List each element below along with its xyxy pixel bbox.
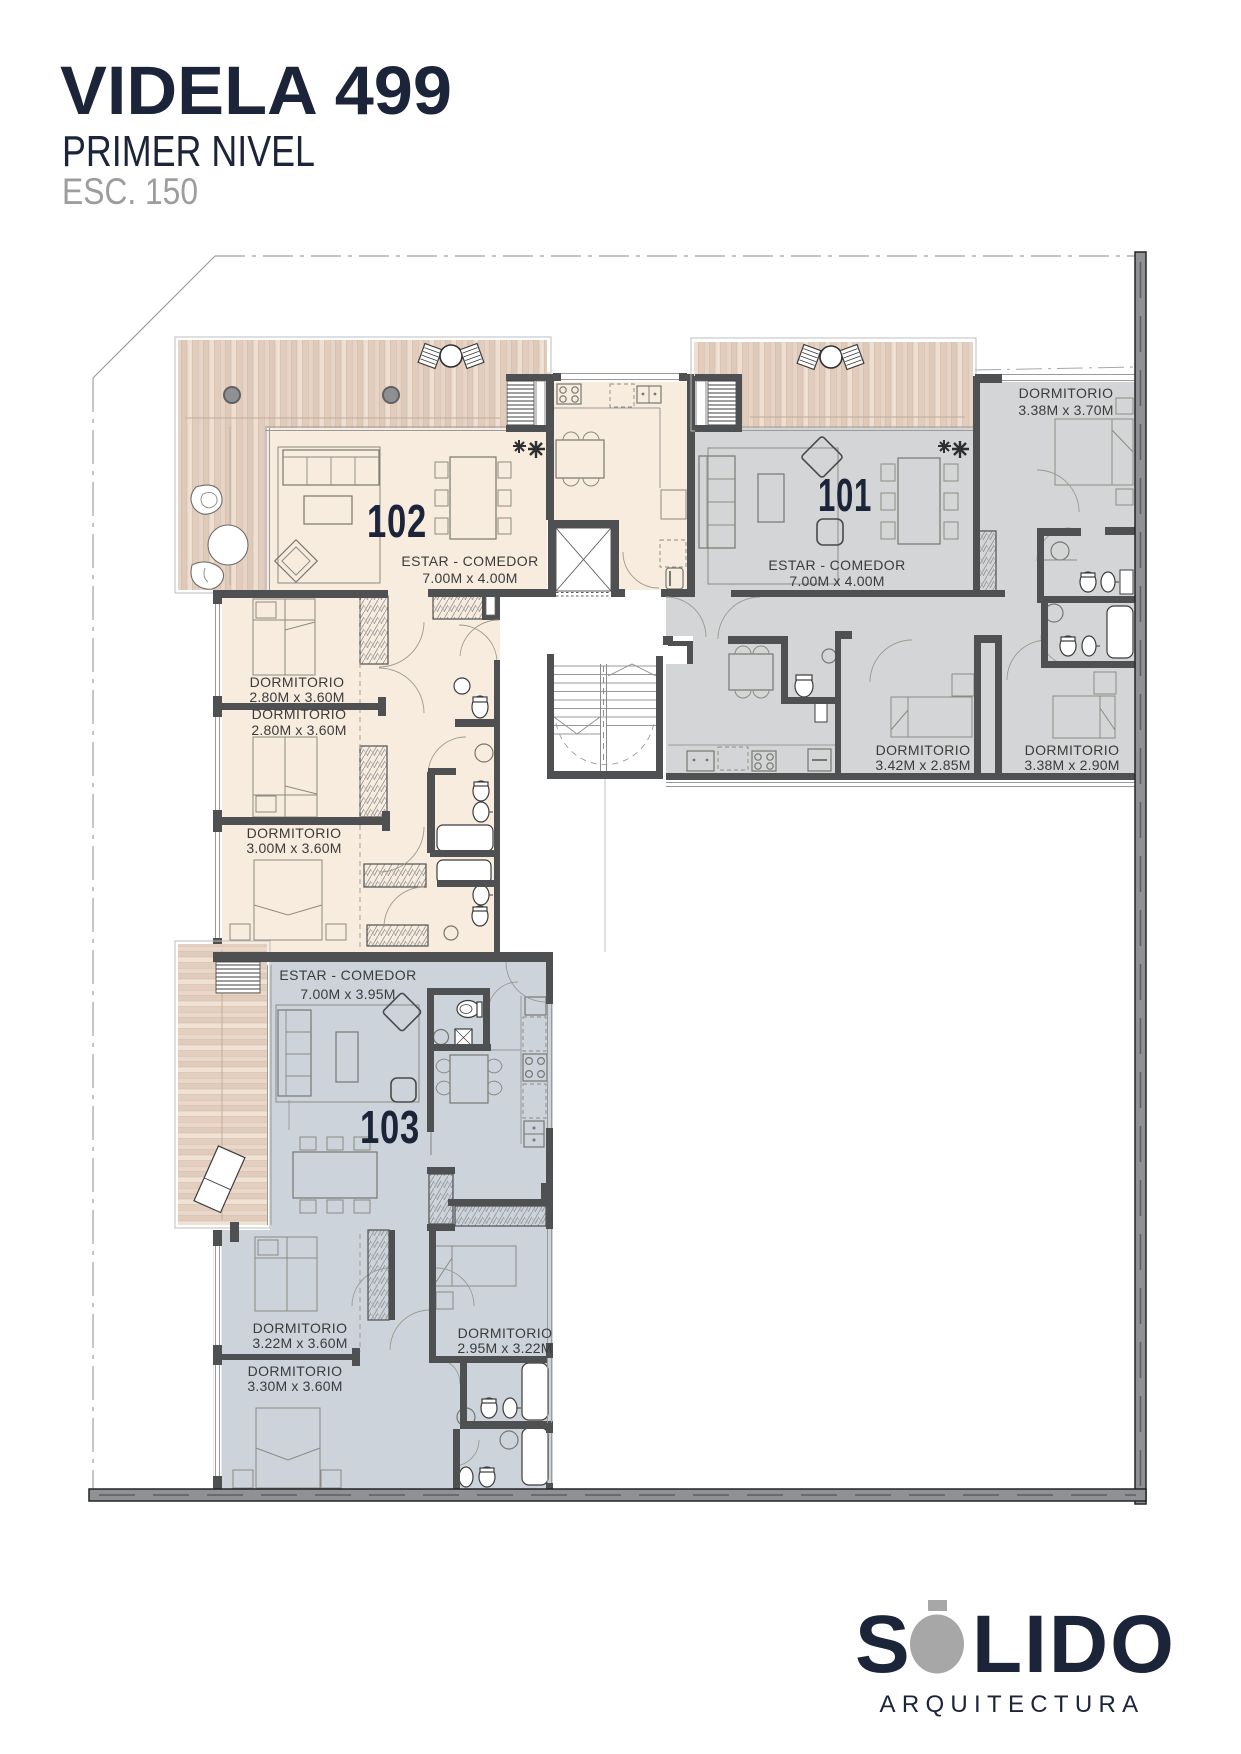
svg-text:7.00M x 4.00M: 7.00M x 4.00M <box>422 570 517 586</box>
svg-text:102: 102 <box>367 495 427 547</box>
svg-text:3.38M x 2.90M: 3.38M x 2.90M <box>1024 757 1119 773</box>
svg-text:3.30M x 3.60M: 3.30M x 3.60M <box>247 1378 342 1394</box>
svg-text:ESC. 150: ESC. 150 <box>62 171 198 212</box>
svg-text:7.00M x 3.95M: 7.00M x 3.95M <box>300 986 395 1002</box>
svg-text:103: 103 <box>360 1101 420 1153</box>
svg-text:ESTAR - COMEDOR: ESTAR - COMEDOR <box>768 557 905 573</box>
svg-text:DORMITORIO: DORMITORIO <box>458 1325 553 1341</box>
svg-text:DORMITORIO: DORMITORIO <box>252 706 347 722</box>
svg-text:2.80M x 3.60M: 2.80M x 3.60M <box>251 722 346 738</box>
svg-text:DORMITORIO: DORMITORIO <box>876 742 971 758</box>
svg-text:LIDO: LIDO <box>972 1599 1176 1690</box>
svg-text:3.42M x 2.85M: 3.42M x 2.85M <box>875 757 970 773</box>
svg-text:101: 101 <box>818 469 872 521</box>
svg-text:ARQUITECTURA: ARQUITECTURA <box>880 1691 1145 1718</box>
svg-text:DORMITORIO: DORMITORIO <box>1019 385 1114 401</box>
svg-text:DORMITORIO: DORMITORIO <box>247 825 342 841</box>
svg-text:DORMITORIO: DORMITORIO <box>253 1320 348 1336</box>
svg-text:2.95M x 3.22M: 2.95M x 3.22M <box>457 1340 552 1356</box>
svg-text:3.38M x 3.70M: 3.38M x 3.70M <box>1018 402 1113 418</box>
svg-text:DORMITORIO: DORMITORIO <box>250 674 345 690</box>
svg-text:ESTAR - COMEDOR: ESTAR - COMEDOR <box>279 967 416 983</box>
svg-text:3.22M x 3.60M: 3.22M x 3.60M <box>252 1335 347 1351</box>
svg-text:7.00M x 4.00M: 7.00M x 4.00M <box>789 573 884 589</box>
svg-text:ESTAR - COMEDOR: ESTAR - COMEDOR <box>401 553 538 569</box>
svg-text:PRIMER NIVEL: PRIMER NIVEL <box>62 127 315 176</box>
svg-text:3.00M x 3.60M: 3.00M x 3.60M <box>246 840 341 856</box>
svg-text:S: S <box>855 1599 910 1690</box>
svg-text:VIDELA 499: VIDELA 499 <box>60 52 452 129</box>
svg-text:DORMITORIO: DORMITORIO <box>248 1363 343 1379</box>
svg-text:DORMITORIO: DORMITORIO <box>1025 742 1120 758</box>
svg-text:2.80M x 3.60M: 2.80M x 3.60M <box>249 689 344 705</box>
